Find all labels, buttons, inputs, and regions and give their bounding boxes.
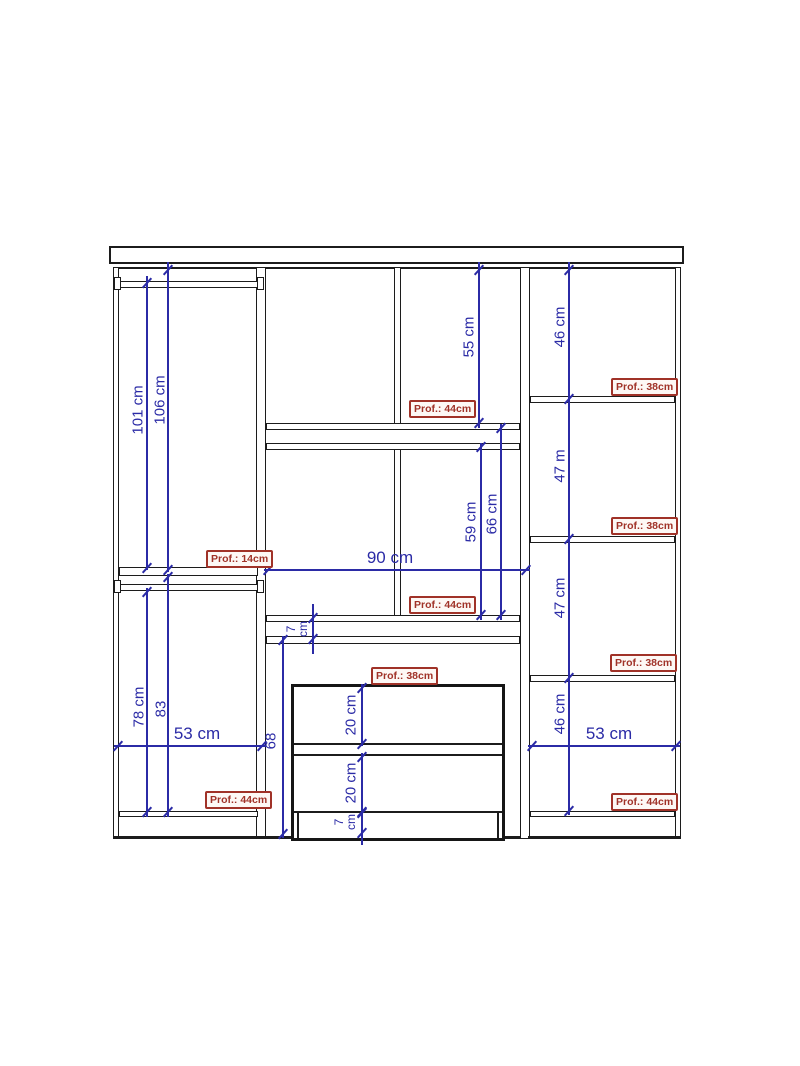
depth-label-dresser: Prof.: 38cm (371, 667, 438, 685)
hanging-rod-lower-cap-left (114, 580, 121, 593)
label-106cm: 106 cm (152, 375, 169, 424)
mid-shelf-upper-a (266, 423, 520, 430)
label-68: 68 (263, 733, 280, 750)
dim-line-20cm-drawer1 (361, 684, 363, 746)
depth-label-mid-upper: Prof.: 44cm (409, 400, 476, 418)
drawer-unit (291, 684, 505, 841)
right-bottom-shelf (530, 811, 675, 817)
dim-line-68 (282, 636, 284, 838)
drawer2-top-line (294, 754, 502, 756)
dim-line-59cm (480, 443, 482, 620)
furniture-technical-drawing: 106 cm 101 cm 83 78 cm 53 cm 55 cm 59 cm… (0, 0, 800, 1066)
right-shelf-1 (530, 396, 675, 403)
label-78cm: 78 cm (131, 687, 148, 728)
right-floor-line (528, 836, 681, 839)
label-101cm: 101 cm (130, 385, 147, 434)
left-outer-wall (113, 267, 119, 839)
hanging-rod-lower-cap-right (257, 580, 264, 593)
hanging-rod-upper (119, 281, 258, 288)
left-shelf (119, 567, 258, 576)
label-46cm-right4: 46 cm (552, 694, 569, 735)
mid-right-divider-wall (520, 267, 530, 839)
dim-line-53cm-left (114, 745, 266, 747)
label-7cm-plinth: 7 cm (333, 813, 357, 831)
label-53cm-left: 53 cm (174, 724, 220, 744)
top-panel (109, 246, 684, 264)
dim-line-83 (167, 574, 169, 817)
left-floor-line (113, 836, 266, 839)
label-55cm: 55 cm (461, 317, 478, 358)
dim-line-90cm (264, 569, 530, 571)
drawer1-bottom-line (294, 743, 502, 745)
label-90cm: 90 cm (367, 548, 413, 568)
dim-line-55cm (478, 262, 480, 428)
label-59cm: 59 cm (463, 502, 480, 543)
dim-line-7cm-shelf (312, 604, 314, 654)
label-7cm-shelf: 7 cm (285, 620, 309, 638)
hanging-rod-upper-cap-right (257, 277, 264, 290)
depth-label-mid-lower: Prof.: 44cm (409, 596, 476, 614)
right-shelf-3 (530, 675, 675, 682)
drawer-plinth-foot-left (297, 813, 299, 838)
hanging-rod-upper-cap-left (114, 277, 121, 290)
depth-label-left-shelf: Prof.: 14cm (206, 550, 273, 568)
label-53cm-right: 53 cm (586, 724, 632, 744)
left-bottom-shelf (119, 811, 258, 817)
mid-upper-divider-bottom (394, 448, 401, 618)
drawer2-bottom-line (294, 811, 502, 813)
label-47cm-right3: 47 cm (552, 578, 569, 619)
depth-label-right-base: Prof.: 44cm (611, 793, 678, 811)
hanging-rod-lower (119, 584, 258, 591)
label-47m-right2: 47 m (552, 449, 569, 482)
right-outer-wall (675, 267, 681, 839)
mid-upper-divider-top (394, 267, 401, 426)
drawer-plinth-foot-right (497, 813, 499, 838)
depth-label-left-base: Prof.: 44cm (205, 791, 272, 809)
label-83: 83 (153, 701, 170, 718)
depth-label-right-sec3: Prof.: 38cm (610, 654, 677, 672)
label-20cm-drawer1: 20 cm (343, 695, 360, 736)
depth-label-right-sec2: Prof.: 38cm (611, 517, 678, 535)
dim-line-53cm-right (528, 745, 680, 747)
right-shelf-2 (530, 536, 675, 543)
label-46cm-right1: 46 cm (552, 307, 569, 348)
label-66cm: 66 cm (484, 494, 501, 535)
dim-line-7cm-plinth (361, 801, 363, 845)
label-20cm-drawer2: 20 cm (343, 763, 360, 804)
depth-label-right-sec1: Prof.: 38cm (611, 378, 678, 396)
